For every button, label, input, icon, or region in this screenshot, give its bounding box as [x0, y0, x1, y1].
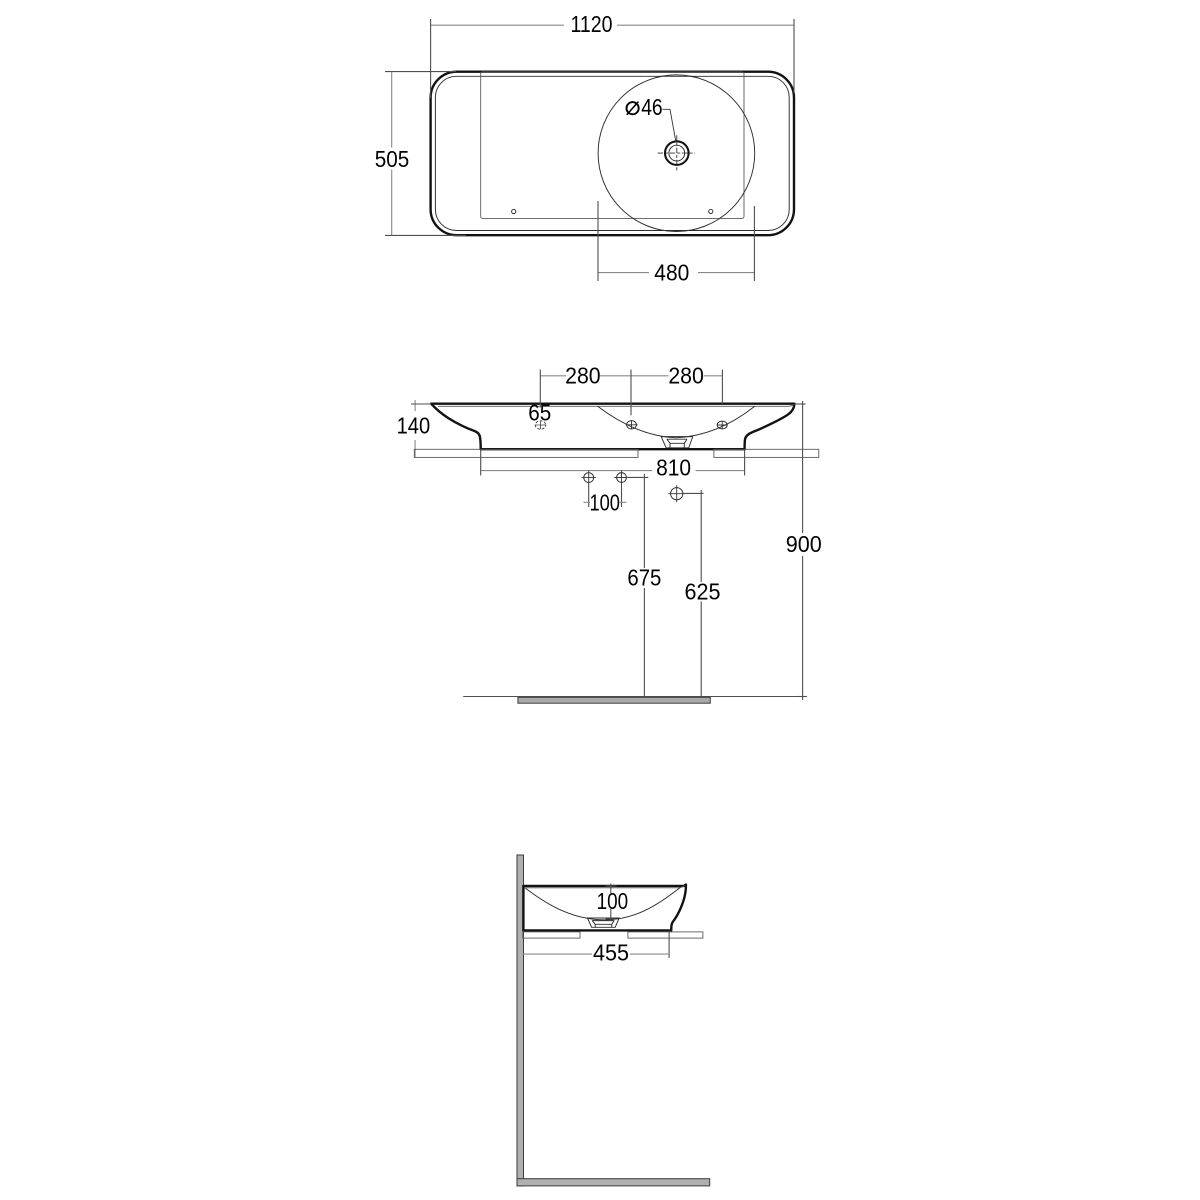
svg-text:455: 455 [593, 939, 629, 965]
svg-text:100: 100 [597, 888, 629, 914]
svg-text:505: 505 [375, 146, 410, 172]
svg-text:280: 280 [668, 363, 704, 389]
svg-text:480: 480 [654, 259, 689, 285]
svg-text:100: 100 [589, 489, 620, 515]
svg-text:280: 280 [565, 363, 601, 389]
svg-text:140: 140 [397, 413, 431, 439]
svg-text:675: 675 [627, 565, 661, 591]
svg-text:625: 625 [685, 579, 721, 605]
svg-text:810: 810 [656, 454, 691, 480]
svg-text:46: 46 [641, 94, 663, 120]
svg-text:900: 900 [786, 531, 822, 557]
svg-text:1120: 1120 [571, 11, 613, 37]
